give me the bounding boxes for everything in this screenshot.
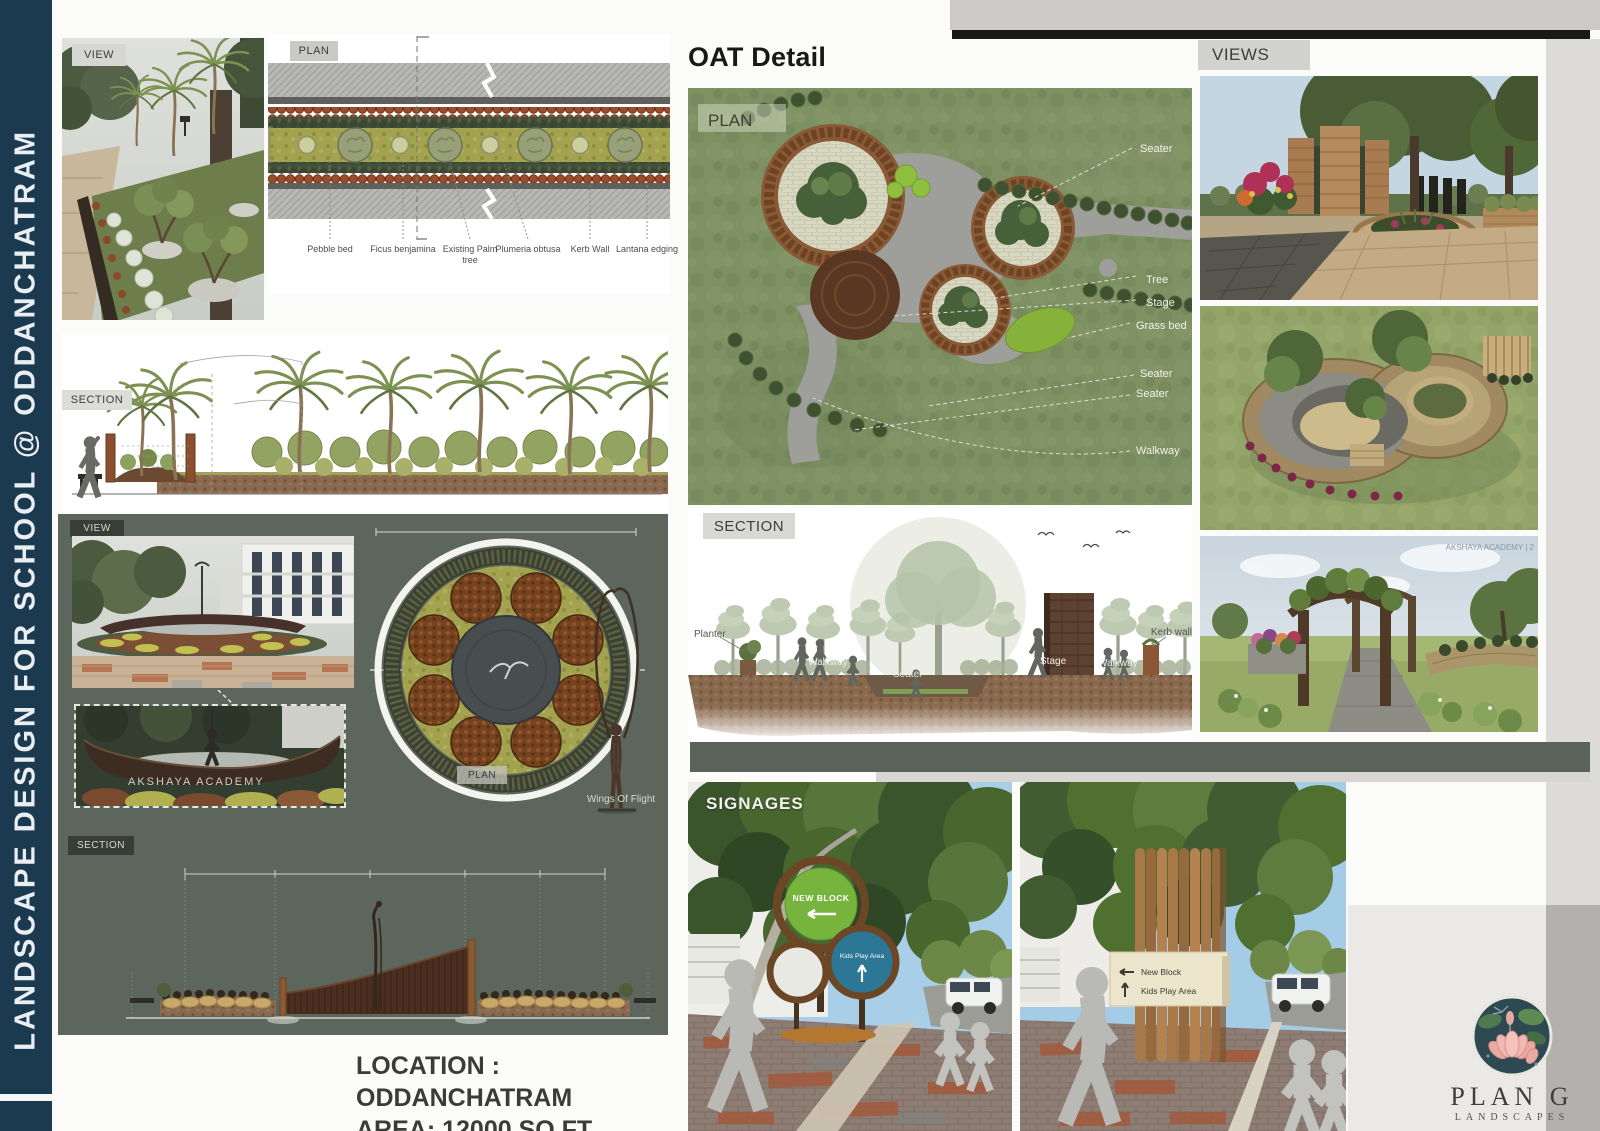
boat-name-text: AKSHAYA ACADEMY <box>128 776 265 788</box>
board-new-block-text: New Block <box>1141 967 1182 977</box>
callout-ficus: Ficus benjamina <box>370 244 436 255</box>
presentation-board: LANDSCAPE DESIGN FOR SCHOOL @ ODDANCHATR… <box>0 0 1600 1131</box>
board-kids-play-text: Kids Play Area <box>1141 986 1197 996</box>
sage-divider-shadow <box>876 772 1590 782</box>
kids-play-sign-text: Kids Play Area <box>840 953 884 960</box>
planter-circle-1 <box>761 124 905 268</box>
boat-inset-render: AKSHAYA ACADEMY <box>76 706 344 806</box>
logo-name: PLAN G <box>1432 1082 1592 1112</box>
area-text: AREA: 12000 SQ.FT <box>356 1114 686 1131</box>
left-shrub-band <box>157 983 276 1016</box>
oat-callout-grass-bed: Grass bed <box>1136 320 1187 332</box>
logo-subtitle: LANDSCAPES <box>1432 1112 1592 1123</box>
entrance-view-render <box>72 536 354 688</box>
zoom-connector <box>208 690 248 704</box>
avenue-section-drawing <box>62 334 668 512</box>
scale-figure <box>80 436 99 497</box>
oat-title: OAT Detail <box>688 42 826 73</box>
brick-piers <box>1288 126 1389 222</box>
avenue-plan-tag: PLAN <box>290 41 338 61</box>
top-black-bar <box>952 30 1590 39</box>
entrance-section-drawing <box>70 860 658 1028</box>
wings-sculpture <box>574 578 662 818</box>
oat-plan-drawing: PLAN Seater Tree Stage Grass bed Seater … <box>688 88 1192 505</box>
view-render-1 <box>1200 76 1538 300</box>
view-render-2 <box>1200 306 1538 530</box>
sidebar: LANDSCAPE DESIGN FOR SCHOOL @ ODDANCHATR… <box>0 0 52 1131</box>
sidebar-divider <box>0 1094 52 1101</box>
signage-render-1: NEW BLOCK Kids Play Area <box>688 782 1012 1131</box>
view-watermark: AKSHAYA ACADEMY | 2 <box>1446 543 1535 552</box>
oat-section-panel: Planter Walkway Seater Stage Walkway Ker… <box>688 505 1192 742</box>
oat-sec-callout-planter: Planter <box>694 629 726 640</box>
board-title: LANDSCAPE DESIGN FOR SCHOOL @ ODDANCHATR… <box>10 129 43 1051</box>
oat-callout-seater-1: Seater <box>1140 143 1173 155</box>
blank-sign-disc <box>770 944 826 1000</box>
callout-pebble-bed: Pebble bed <box>297 244 363 255</box>
direction-board: New Block Kids Play Area <box>1110 952 1230 1006</box>
signage-photo-2: New Block Kids Play Area <box>1020 782 1346 1131</box>
oat-sec-callout-kerb-wall: Kerb wall <box>1151 627 1192 638</box>
sail-wall <box>285 947 472 1014</box>
view-render-3: AKSHAYA ACADEMY | 2 <box>1200 536 1538 732</box>
entrance-panel: VIEW <box>58 514 668 1035</box>
callout-palm: Existing Palm tree <box>437 244 503 266</box>
oat-sec-callout-walkway-2: Walkway <box>1098 658 1138 669</box>
avenue-section-tag: SECTION <box>62 390 132 410</box>
oat-callout-seater-3: Seater <box>1136 388 1169 400</box>
kerb-wall-pot <box>1143 645 1159 675</box>
views-title: VIEWS <box>1198 40 1310 70</box>
avenue-view-panel: VIEW <box>62 38 264 320</box>
flower-box <box>1248 629 1306 674</box>
wings-of-flight-label: Wings Of Flight <box>566 794 676 805</box>
oat-section-tag: SECTION <box>703 513 795 539</box>
avenue-view-tag: VIEW <box>72 44 126 66</box>
stage-circle <box>810 250 900 340</box>
pergola-aerial <box>1483 336 1533 385</box>
project-info: LOCATION : ODDANCHATRAM AREA: 12000 SQ.F… <box>356 1050 686 1131</box>
avenue-section-panel: SECTION <box>62 334 668 512</box>
signage-render-2: New Block Kids Play Area <box>1020 782 1346 1131</box>
top-gray-band <box>950 0 1600 30</box>
entrance-section-tag: SECTION <box>68 836 134 855</box>
oat-sec-callout-walkway-1: Walkway <box>808 657 848 668</box>
oat-sec-callout-seater: Seater <box>893 669 923 680</box>
oat-callout-walkway: Walkway <box>1136 445 1180 457</box>
location-text: LOCATION : ODDANCHATRAM <box>356 1050 686 1114</box>
oat-callout-tree: Tree <box>1146 274 1168 286</box>
oat-section-drawing: Planter Walkway Seater Stage Walkway Ker… <box>688 505 1192 742</box>
right-shrub-band <box>478 983 633 1016</box>
boat-inset: AKSHAYA ACADEMY <box>74 704 346 808</box>
shrub-row <box>252 430 668 476</box>
callout-lantana: Lantana edging <box>614 244 680 255</box>
avenue-view-render <box>62 38 264 320</box>
kids-play-sign <box>828 928 896 996</box>
callout-plumeria: Plumeria obtusa <box>495 244 561 255</box>
entrance-view-tag: VIEW <box>70 520 124 537</box>
planter-circle-3 <box>919 264 1011 356</box>
plan-g-logo: PLAN G LANDSCAPES <box>1432 994 1592 1131</box>
birds-icon <box>1038 531 1130 547</box>
new-block-sign-text: NEW BLOCK <box>793 893 850 903</box>
lotus-bud <box>1506 1011 1514 1025</box>
signages-title: SIGNAGES <box>706 794 804 814</box>
oat-callout-seater-2: Seater <box>1140 368 1173 380</box>
oat-callout-stage: Stage <box>1146 297 1175 309</box>
logo-emblem <box>1470 994 1554 1078</box>
signage-photo-1: NEW BLOCK Kids Play Area SIGNAGES <box>688 782 1012 1131</box>
sage-divider-bar <box>690 742 1590 772</box>
oat-sec-callout-stage: Stage <box>1040 656 1067 667</box>
avenue-plan-panel: PLAN Pebble bed Ficus benjamina Existing… <box>268 34 670 294</box>
oat-plan-tag: PLAN <box>708 111 752 130</box>
entrance-plan-tag: PLAN <box>457 766 507 784</box>
